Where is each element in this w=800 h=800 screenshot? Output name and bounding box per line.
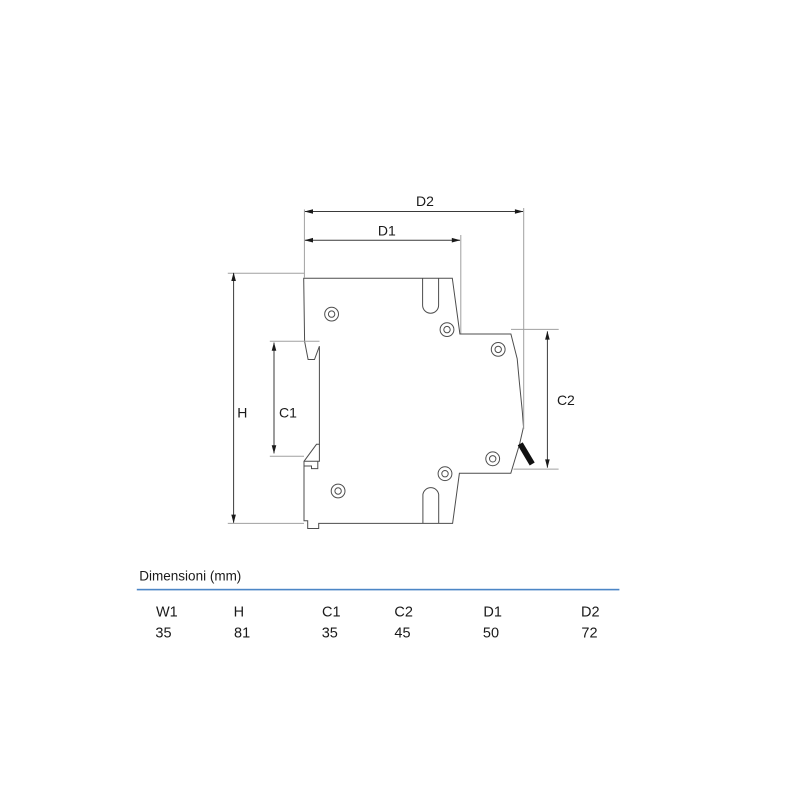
svg-text:35: 35 (155, 626, 171, 642)
svg-text:C1: C1 (322, 604, 341, 620)
svg-text:D2: D2 (416, 193, 434, 209)
svg-text:35: 35 (322, 626, 338, 642)
svg-text:Dimensioni (mm): Dimensioni (mm) (139, 568, 241, 583)
svg-text:D2: D2 (581, 604, 600, 620)
svg-text:C2: C2 (394, 604, 413, 620)
svg-text:D1: D1 (378, 223, 396, 239)
svg-text:H: H (237, 404, 247, 420)
svg-text:C1: C1 (279, 405, 297, 421)
svg-text:C2: C2 (557, 392, 575, 408)
svg-text:72: 72 (581, 626, 597, 642)
svg-text:45: 45 (394, 626, 410, 642)
svg-text:H: H (234, 604, 244, 620)
svg-text:81: 81 (234, 626, 250, 642)
svg-text:50: 50 (483, 626, 499, 642)
svg-text:D1: D1 (483, 604, 502, 620)
svg-text:W1: W1 (156, 604, 178, 620)
